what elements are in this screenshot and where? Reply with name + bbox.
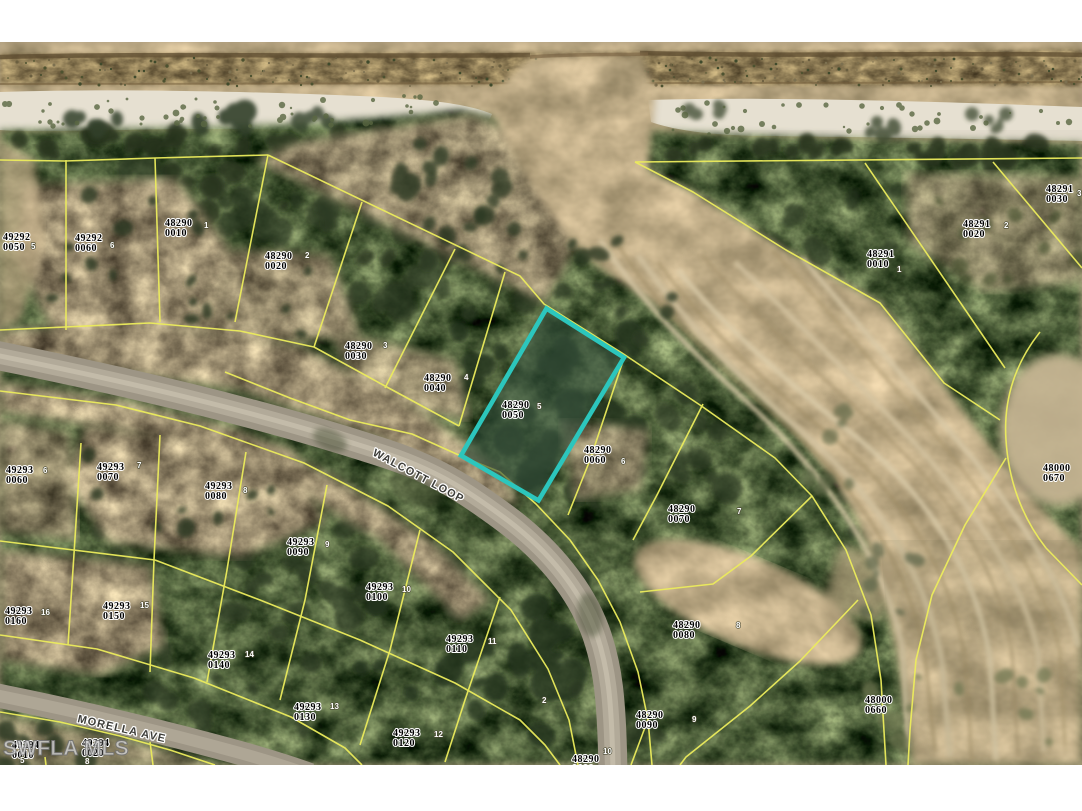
svg-text:6: 6 [43, 466, 48, 475]
svg-text:0080: 0080 [673, 630, 695, 641]
svg-text:2: 2 [542, 696, 547, 705]
svg-text:6: 6 [621, 457, 626, 466]
svg-text:1: 1 [897, 265, 902, 274]
svg-text:0030: 0030 [1046, 194, 1068, 205]
svg-text:15: 15 [140, 601, 149, 610]
svg-text:4: 4 [464, 373, 469, 382]
svg-text:13: 13 [330, 702, 339, 711]
svg-text:10: 10 [603, 747, 612, 756]
svg-text:16: 16 [41, 608, 50, 617]
svg-text:0120: 0120 [393, 738, 415, 749]
svg-text:0030: 0030 [345, 351, 367, 362]
svg-text:0050: 0050 [502, 410, 524, 421]
svg-text:0020: 0020 [265, 261, 287, 272]
svg-text:5: 5 [31, 242, 36, 251]
svg-text:0670: 0670 [1043, 473, 1065, 484]
svg-text:0050: 0050 [3, 242, 25, 253]
svg-text:0660: 0660 [865, 705, 887, 716]
svg-text:5: 5 [537, 402, 542, 411]
svg-text:6: 6 [110, 241, 115, 250]
svg-text:2: 2 [1004, 221, 1009, 230]
svg-text:0090: 0090 [287, 547, 309, 558]
svg-text:0160: 0160 [5, 616, 27, 627]
svg-text:0070: 0070 [97, 472, 119, 483]
svg-text:0110: 0110 [446, 644, 467, 655]
svg-text:0060: 0060 [75, 243, 97, 254]
svg-text:3: 3 [1077, 189, 1082, 198]
svg-text:0070: 0070 [668, 514, 690, 525]
svg-text:10: 10 [402, 585, 411, 594]
svg-text:0100: 0100 [366, 592, 388, 603]
svg-text:0020: 0020 [963, 229, 985, 240]
svg-text:0130: 0130 [294, 712, 316, 723]
svg-text:0040: 0040 [424, 383, 446, 394]
svg-text:11: 11 [488, 637, 497, 646]
svg-text:9: 9 [325, 540, 330, 549]
svg-text:1: 1 [204, 221, 209, 230]
svg-text:0150: 0150 [103, 611, 125, 622]
svg-text:SWFLA MLS: SWFLA MLS [3, 737, 129, 760]
svg-text:2: 2 [305, 251, 310, 260]
svg-text:12: 12 [434, 730, 443, 739]
svg-text:8: 8 [243, 486, 248, 495]
svg-text:0010: 0010 [165, 228, 187, 239]
svg-text:0080: 0080 [205, 491, 227, 502]
svg-text:7: 7 [737, 507, 742, 516]
svg-text:0140: 0140 [208, 660, 230, 671]
svg-text:7: 7 [137, 461, 142, 470]
svg-text:0090: 0090 [636, 720, 658, 731]
svg-text:3: 3 [383, 341, 388, 350]
svg-text:0060: 0060 [584, 455, 606, 466]
svg-text:0060: 0060 [6, 475, 28, 486]
svg-text:14: 14 [245, 650, 254, 659]
svg-text:0010: 0010 [867, 259, 889, 270]
svg-text:9: 9 [692, 715, 697, 724]
svg-text:8: 8 [736, 621, 741, 630]
